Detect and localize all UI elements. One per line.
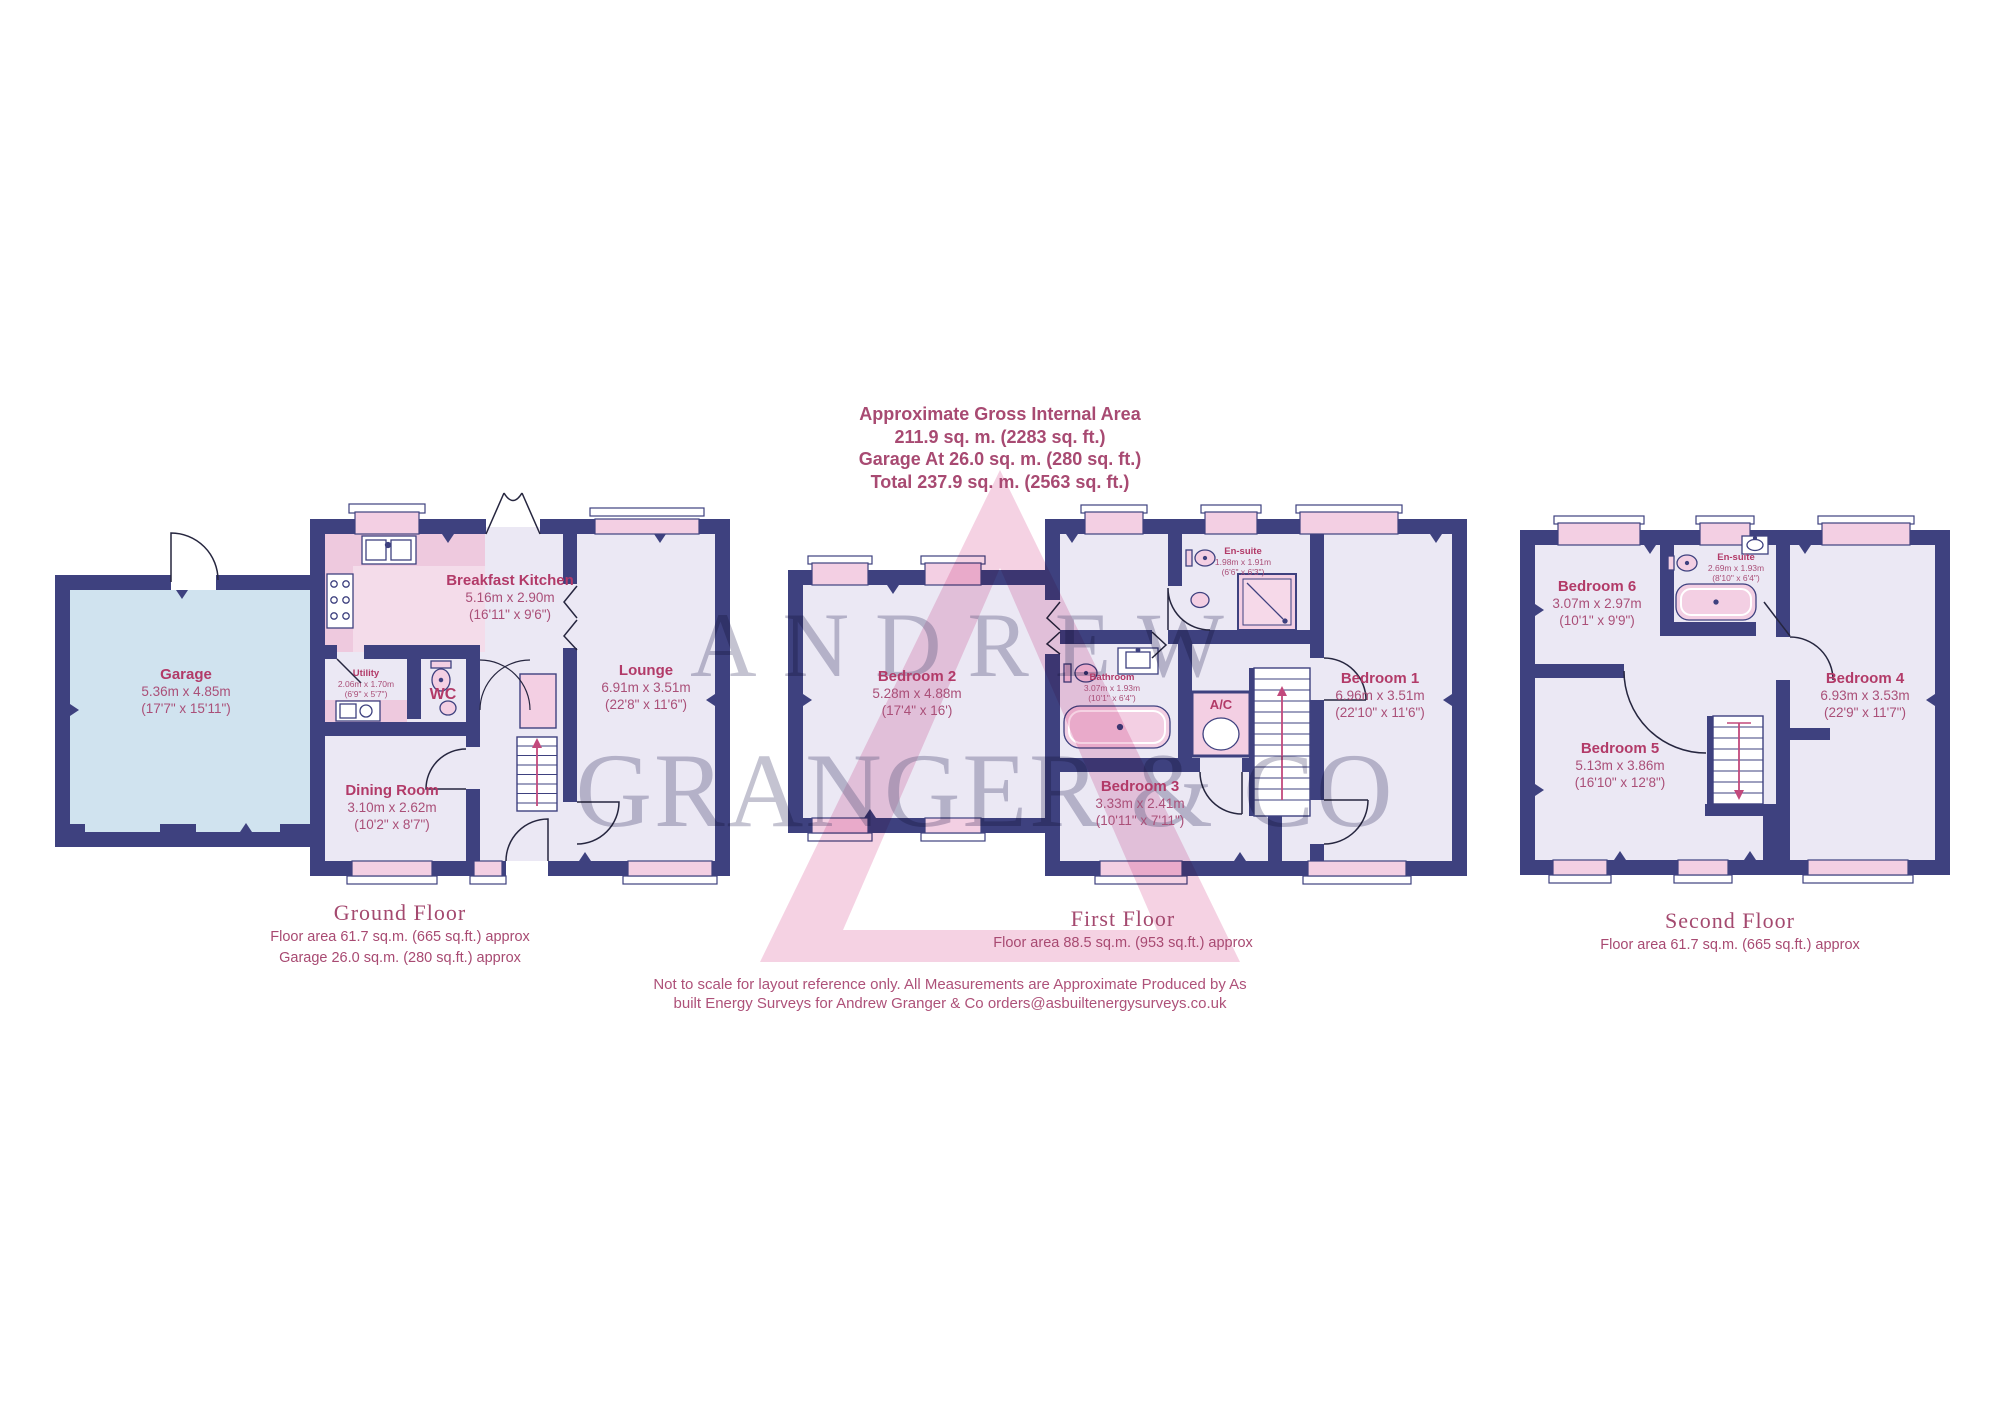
room-name: A/C bbox=[1210, 696, 1232, 713]
room-name: Bedroom 4 bbox=[1820, 670, 1909, 687]
floor-area-line: Floor area 61.7 sq.m. (665 sq.ft.) appro… bbox=[1600, 937, 1860, 955]
room-dim-imperial: (10'2" x 8'7") bbox=[345, 816, 438, 833]
room-dim-imperial: (10'1" x 9'9") bbox=[1552, 612, 1641, 629]
room-dim-imperial: (17'7" x 15'11") bbox=[141, 700, 231, 717]
second-floor-caption: Second Floor Floor area 61.7 sq.m. (665 … bbox=[1600, 908, 1860, 955]
disclaimer-line: built Energy Surveys for Andrew Granger … bbox=[653, 994, 1246, 1013]
room-name: Lounge bbox=[601, 662, 690, 679]
floor-title: Second Floor bbox=[1600, 908, 1860, 934]
room-label-bathroom: Bathroom 3.07m x 1.93m (10'1" x 6'4") bbox=[1084, 672, 1140, 703]
room-name: Breakfast Kitchen bbox=[446, 572, 574, 589]
room-dim-imperial: (16'11" x 9'6") bbox=[446, 606, 574, 623]
header-line: Total 237.9 sq. m. (2563 sq. ft.) bbox=[859, 471, 1141, 494]
room-name: Bedroom 3 bbox=[1095, 778, 1184, 795]
room-name: Dining Room bbox=[345, 782, 438, 799]
room-label-garage: Garage 5.36m x 4.85m (17'7" x 15'11") bbox=[141, 666, 231, 717]
utility-fixtures bbox=[336, 701, 380, 721]
ground-floor-caption: Ground Floor Floor area 61.7 sq.m. (665 … bbox=[270, 900, 530, 967]
header-line: Approximate Gross Internal Area bbox=[859, 403, 1141, 426]
floor-title: First Floor bbox=[993, 906, 1253, 932]
room-dim-imperial: (6'9" x 5'7") bbox=[338, 689, 394, 699]
room-dim-metric: 5.13m x 3.86m bbox=[1575, 757, 1666, 774]
room-name: WC bbox=[430, 686, 457, 703]
room-label-bedroom-6: Bedroom 6 3.07m x 2.97m (10'1" x 9'9") bbox=[1552, 578, 1641, 629]
room-label-ensuite-second: En-suite 2.69m x 1.93m (8'10" x 6'4") bbox=[1708, 552, 1764, 583]
first-floor-caption: First Floor Floor area 88.5 sq.m. (953 s… bbox=[993, 906, 1253, 953]
room-label-bedroom-2: Bedroom 2 5.28m x 4.88m (17'4" x 16') bbox=[872, 668, 961, 719]
room-label-dining-room: Dining Room 3.10m x 2.62m (10'2" x 8'7") bbox=[345, 782, 438, 833]
room-dim-metric: 3.07m x 1.93m bbox=[1084, 683, 1140, 693]
room-dim-imperial: (22'8" x 11'6") bbox=[601, 696, 690, 713]
room-name: Bedroom 5 bbox=[1575, 740, 1666, 757]
header-line: 211.9 sq. m. (2283 sq. ft.) bbox=[859, 426, 1141, 449]
room-dim-metric: 2.69m x 1.93m bbox=[1708, 563, 1764, 573]
room-dim-metric: 6.96m x 3.51m bbox=[1335, 687, 1425, 704]
room-label-wc: WC bbox=[430, 686, 457, 703]
room-dim-imperial: (17'4" x 16') bbox=[872, 702, 961, 719]
floor-area-line: Floor area 61.7 sq.m. (665 sq.ft.) appro… bbox=[270, 929, 530, 947]
room-dim-metric: 3.07m x 2.97m bbox=[1552, 595, 1641, 612]
stairs-first bbox=[1249, 668, 1310, 816]
floor-area-line: Floor area 88.5 sq.m. (953 sq.ft.) appro… bbox=[993, 935, 1253, 953]
room-label-bedroom-3: Bedroom 3 3.33m x 2.41m (10'11" x 7'11") bbox=[1095, 778, 1184, 829]
room-dim-imperial: (22'10" x 11'6") bbox=[1335, 704, 1425, 721]
room-dim-metric: 1.98m x 1.91m bbox=[1215, 557, 1271, 567]
room-dim-metric: 6.91m x 3.51m bbox=[601, 679, 690, 696]
room-label-ensuite-first: En-suite 1.98m x 1.91m (6'6" x 6'3") bbox=[1215, 546, 1271, 577]
room-dim-imperial: (6'6" x 6'3") bbox=[1215, 567, 1271, 577]
room-label-lounge: Lounge 6.91m x 3.51m (22'8" x 11'6") bbox=[601, 662, 690, 713]
room-dim-imperial: (10'11" x 7'11") bbox=[1095, 812, 1184, 829]
room-dim-imperial: (10'1" x 6'4") bbox=[1084, 693, 1140, 703]
room-dim-metric: 5.28m x 4.88m bbox=[872, 685, 961, 702]
room-dim-imperial: (16'10" x 12'8") bbox=[1575, 774, 1666, 791]
room-name: Utility bbox=[338, 668, 394, 679]
room-dim-metric: 3.33m x 2.41m bbox=[1095, 795, 1184, 812]
room-name: Bedroom 6 bbox=[1552, 578, 1641, 595]
room-dim-metric: 3.10m x 2.62m bbox=[345, 799, 438, 816]
room-label-airing-cupboard: A/C bbox=[1210, 696, 1232, 713]
room-label-bedroom-4: Bedroom 4 6.93m x 3.53m (22'9" x 11'7") bbox=[1820, 670, 1909, 721]
disclaimer: Not to scale for layout reference only. … bbox=[653, 975, 1246, 1013]
room-name: Bedroom 2 bbox=[872, 668, 961, 685]
room-dim-imperial: (8'10" x 6'4") bbox=[1708, 573, 1764, 583]
room-label-breakfast-kitchen: Breakfast Kitchen 5.16m x 2.90m (16'11" … bbox=[446, 572, 574, 623]
floor-title: Ground Floor bbox=[270, 900, 530, 926]
room-dim-metric: 5.36m x 4.85m bbox=[141, 683, 231, 700]
room-dim-metric: 2.06m x 1.70m bbox=[338, 679, 394, 689]
floor-area-line: Garage 26.0 sq.m. (280 sq.ft.) approx bbox=[270, 950, 530, 968]
header-line: Garage At 26.0 sq. m. (280 sq. ft.) bbox=[859, 448, 1141, 471]
room-dim-imperial: (22'9" x 11'7") bbox=[1820, 704, 1909, 721]
gross-internal-area-header: Approximate Gross Internal Area 211.9 sq… bbox=[859, 403, 1141, 493]
room-label-bedroom-1: Bedroom 1 6.96m x 3.51m (22'10" x 11'6") bbox=[1335, 670, 1425, 721]
disclaimer-line: Not to scale for layout reference only. … bbox=[653, 975, 1246, 994]
room-name: Bedroom 1 bbox=[1335, 670, 1425, 687]
room-name: Bathroom bbox=[1084, 672, 1140, 683]
room-label-utility: Utility 2.06m x 1.70m (6'9" x 5'7") bbox=[338, 668, 394, 699]
room-dim-metric: 5.16m x 2.90m bbox=[446, 589, 574, 606]
hall-cupboard bbox=[520, 674, 556, 728]
garage-door-arc bbox=[171, 533, 218, 582]
floorplan-page: Approximate Gross Internal Area 211.9 sq… bbox=[0, 0, 2000, 1413]
room-name: En-suite bbox=[1215, 546, 1271, 557]
stairs-second bbox=[1707, 716, 1763, 804]
room-dim-metric: 6.93m x 3.53m bbox=[1820, 687, 1909, 704]
room-label-bedroom-5: Bedroom 5 5.13m x 3.86m (16'10" x 12'8") bbox=[1575, 740, 1666, 791]
room-name: Garage bbox=[141, 666, 231, 683]
room-name: En-suite bbox=[1708, 552, 1764, 563]
